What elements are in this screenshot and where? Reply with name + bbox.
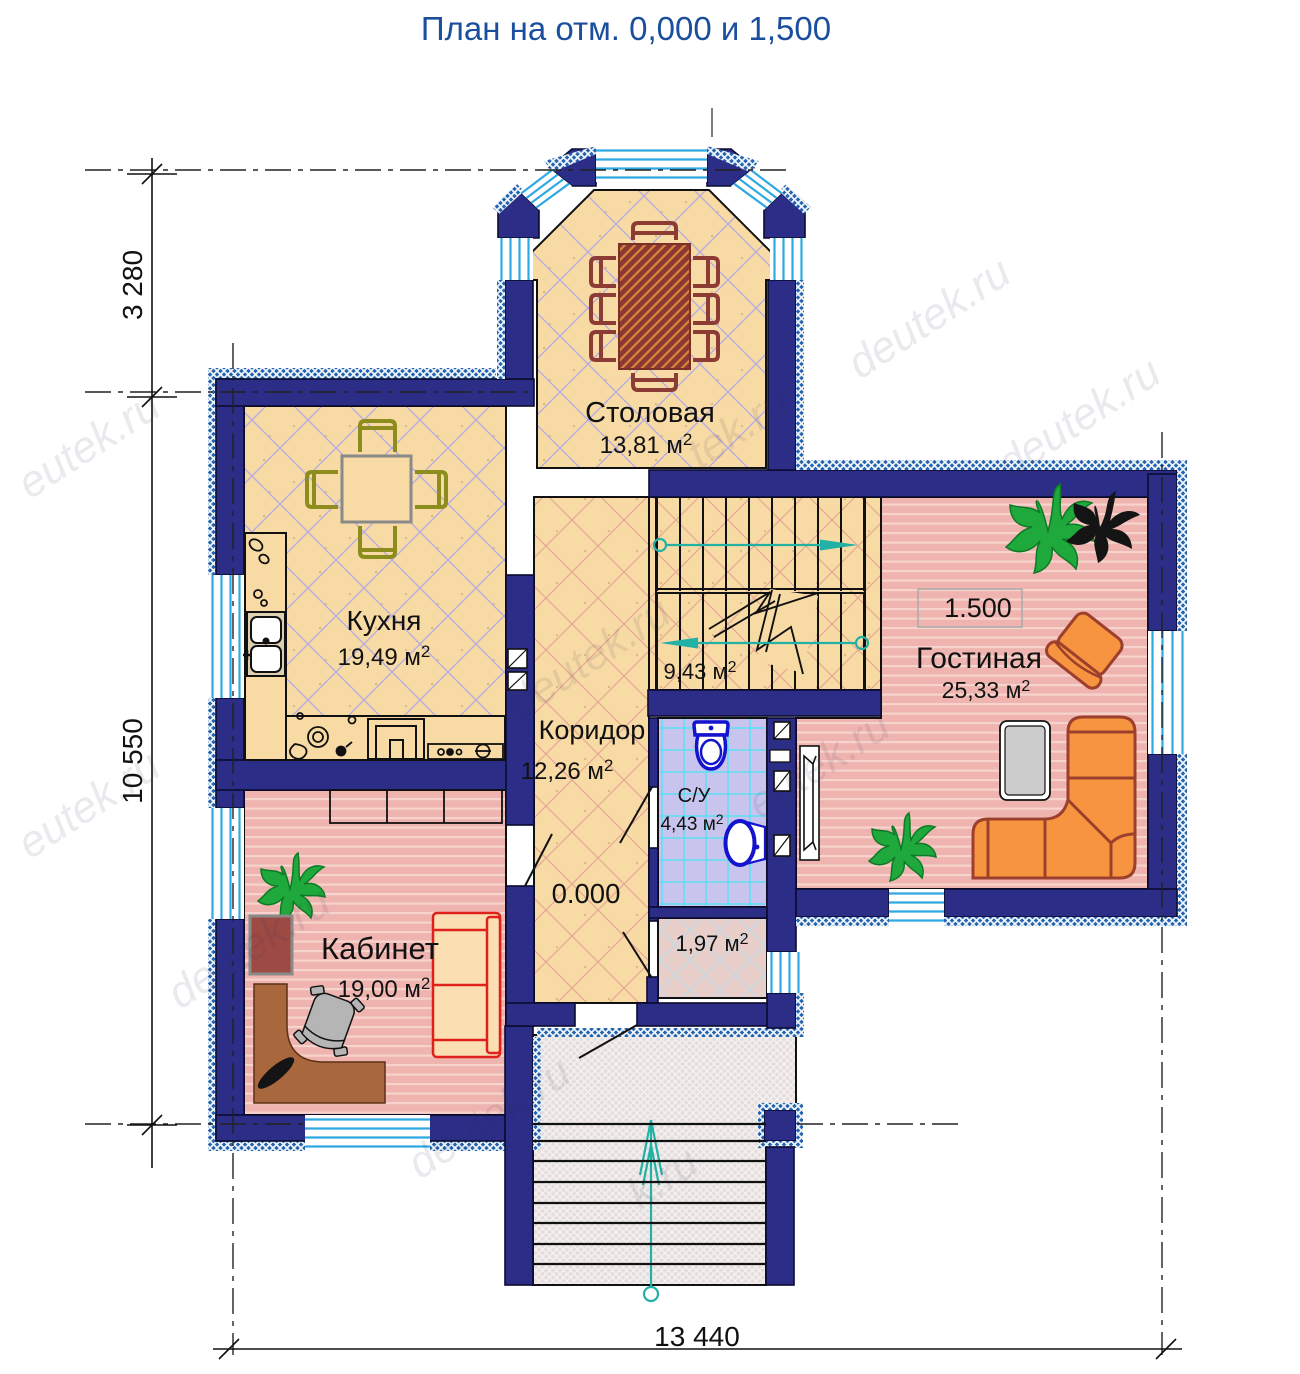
svg-text:4,43 м2: 4,43 м2 xyxy=(660,811,723,835)
svg-text:С/У: С/У xyxy=(678,785,711,807)
svg-text:Столовая: Столовая xyxy=(585,397,715,429)
svg-text:Кухня: Кухня xyxy=(347,605,422,636)
svg-text:19,49 м2: 19,49 м2 xyxy=(338,642,431,671)
svg-text:9,43 м2: 9,43 м2 xyxy=(664,659,737,684)
svg-text:Коридор: Коридор xyxy=(539,715,646,745)
svg-text:0.000: 0.000 xyxy=(552,878,621,909)
svg-text:План на отм. 0,000 и 1,500: План на отм. 0,000 и 1,500 xyxy=(421,10,831,47)
svg-text:Гостиная: Гостиная xyxy=(916,642,1042,675)
svg-text:25,33 м2: 25,33 м2 xyxy=(942,677,1031,703)
svg-text:13 440: 13 440 xyxy=(654,1321,740,1352)
svg-text:Кабинет: Кабинет xyxy=(321,931,439,966)
svg-text:13,81 м2: 13,81 м2 xyxy=(600,430,693,459)
svg-text:1,97 м2: 1,97 м2 xyxy=(676,931,749,956)
svg-text:3 280: 3 280 xyxy=(117,250,148,320)
svg-text:19,00 м2: 19,00 м2 xyxy=(338,974,431,1003)
svg-text:12,26 м2: 12,26 м2 xyxy=(521,756,614,785)
svg-text:1.500: 1.500 xyxy=(944,593,1012,623)
